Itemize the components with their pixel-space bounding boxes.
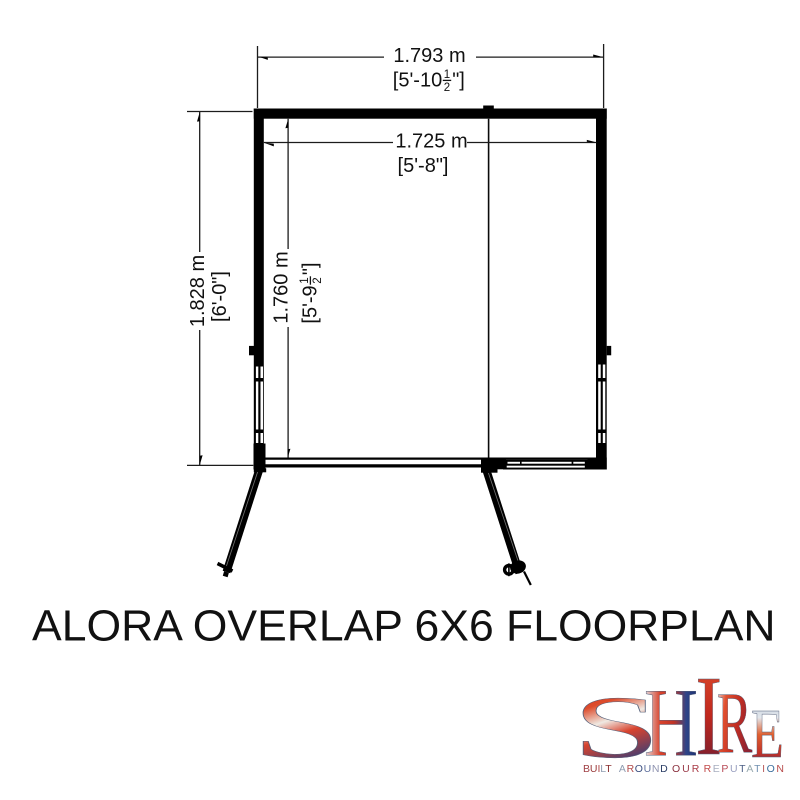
svg-text:2: 2 [444,82,450,94]
svg-text:H: H [644,670,698,777]
svg-text:AROUND: AROUND [619,763,668,775]
svg-text:1.828 m: 1.828 m [187,255,209,327]
svg-text:R: R [717,676,753,773]
svg-text:1.725 m: 1.725 m [395,131,467,153]
svg-text:[5'-10: [5'-10 [393,70,442,92]
svg-text:1.760 m: 1.760 m [271,251,293,323]
svg-text:E: E [751,696,784,773]
svg-text:[5'-8"]: [5'-8"] [398,155,449,177]
svg-text:1.793 m: 1.793 m [393,45,465,67]
svg-text:[5'-9: [5'-9 [300,285,322,323]
svg-text:[6'-0"]: [6'-0"] [209,271,231,322]
svg-text:"]: "] [452,70,465,92]
svg-text:2: 2 [312,277,324,283]
svg-text:REPUTATION: REPUTATION [704,763,784,775]
svg-text:1: 1 [444,69,450,81]
svg-text:BUILT: BUILT [583,763,612,775]
svg-text:1: 1 [299,277,311,283]
svg-text:"]: "] [300,262,322,275]
svg-text:ALORA OVERLAP 6X6 FLOORPLAN: ALORA OVERLAP 6X6 FLOORPLAN [32,603,776,651]
svg-text:OUR: OUR [672,763,700,775]
